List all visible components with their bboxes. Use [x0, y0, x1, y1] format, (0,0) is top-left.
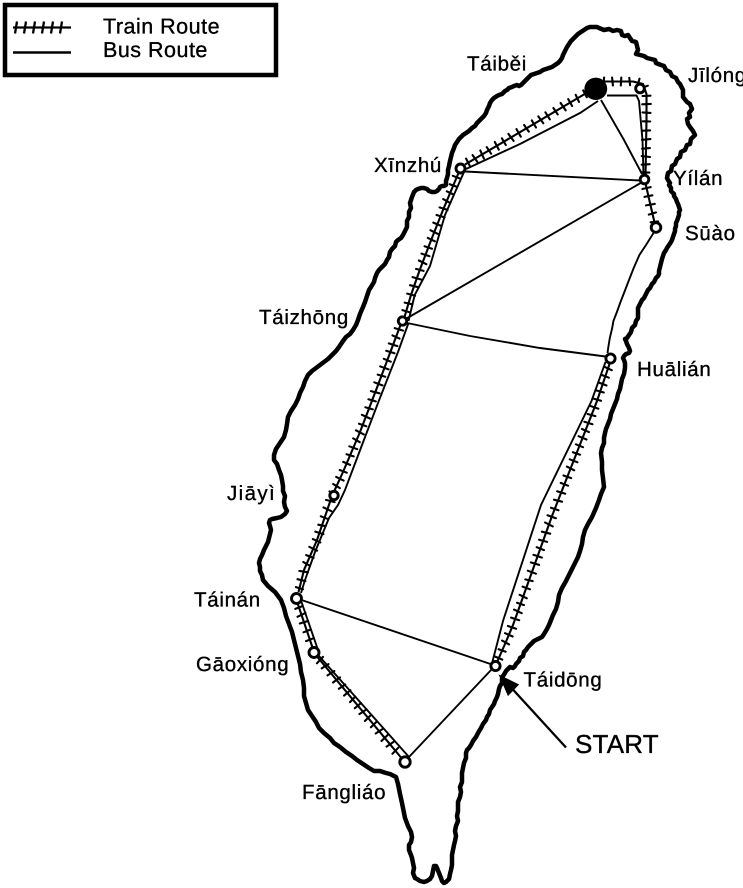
- svg-text:Táiběi: Táiběi: [467, 53, 527, 76]
- svg-text:START: START: [575, 729, 659, 759]
- svg-text:Bus Route: Bus Route: [103, 38, 208, 62]
- svg-text:Train Route: Train Route: [103, 15, 220, 39]
- svg-text:Táizhōng: Táizhōng: [259, 306, 349, 329]
- svg-text:Jīlóng: Jīlóng: [688, 64, 743, 87]
- svg-text:Táidōng: Táidōng: [524, 669, 603, 692]
- svg-text:Huālián: Huālián: [637, 358, 711, 381]
- svg-text:Gāoxióng: Gāoxióng: [196, 653, 289, 676]
- svg-text:Fāngliáo: Fāngliáo: [302, 781, 386, 804]
- svg-text:Yílán: Yílán: [673, 167, 723, 190]
- svg-text:Sūào: Sūào: [685, 222, 736, 245]
- svg-text:Táinán: Táinán: [194, 589, 261, 612]
- svg-text:Jiāyì: Jiāyì: [227, 482, 276, 505]
- svg-text:Xīnzhú: Xīnzhú: [374, 154, 442, 177]
